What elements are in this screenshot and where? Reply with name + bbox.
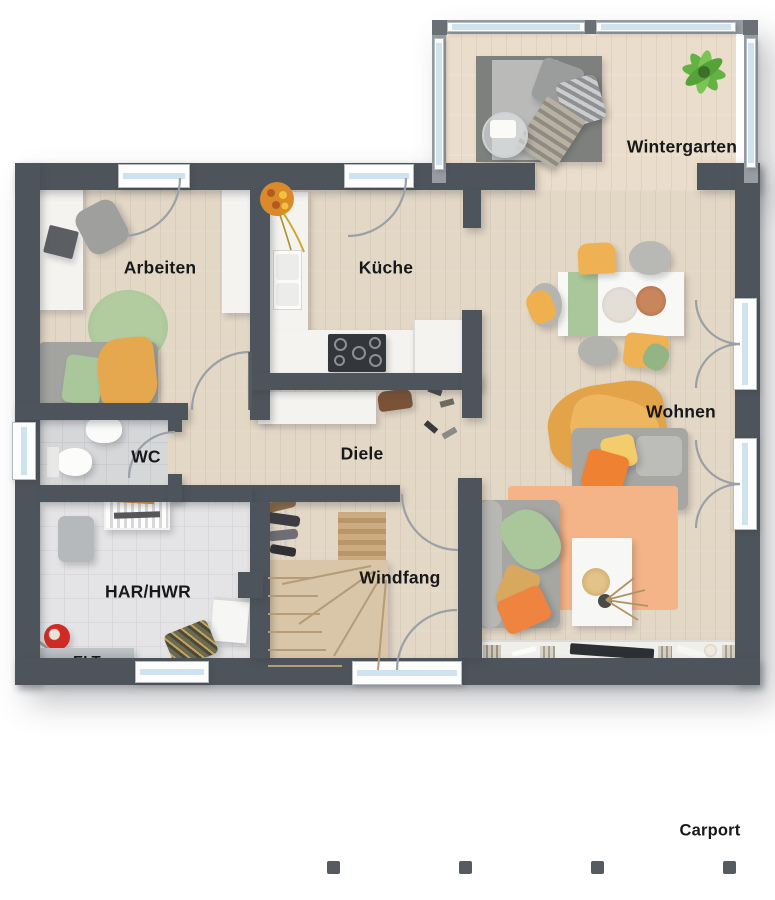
window-wc	[12, 422, 36, 480]
wall-wintergarten-column	[463, 190, 481, 228]
wall-wc-har	[40, 485, 252, 502]
wintergarten-corner-left	[432, 20, 447, 35]
wall-windfang-right	[458, 478, 482, 658]
wall-top-left	[15, 163, 535, 190]
glass-pane	[601, 24, 731, 30]
glass-pane	[452, 24, 580, 30]
sofa-chaise-cushion	[636, 436, 682, 476]
books-1	[483, 645, 501, 659]
glass-pane	[742, 303, 748, 385]
laundry-bin-gray	[58, 516, 94, 562]
vase-dark	[598, 594, 612, 608]
glass-pane	[123, 173, 185, 179]
wintergarten-glazing-left	[434, 38, 444, 170]
window-har	[135, 661, 209, 683]
floor-plan: ELT	[0, 0, 775, 900]
window-arbeiten	[118, 164, 190, 188]
woven-tray	[582, 568, 610, 596]
terrace-door-1	[733, 298, 757, 390]
room-label-windfang: Windfang	[359, 568, 440, 589]
wintergarten-mullion	[585, 20, 596, 34]
room-label-har-hwr: HAR/HWR	[105, 582, 191, 603]
burner-2	[334, 355, 345, 366]
wall-wc-right-top	[168, 420, 182, 432]
carport-post-4	[723, 861, 736, 874]
wardrobe	[222, 180, 252, 313]
room-label-wohnen: Wohnen	[646, 402, 716, 423]
kitchen-sink-basin-1	[276, 254, 299, 280]
glass-pane	[748, 43, 754, 163]
wintergarten-glazing-top-1	[447, 22, 585, 32]
burner-4	[369, 337, 381, 349]
glass-pane	[349, 173, 409, 179]
wintergarten-corner-right	[743, 20, 758, 35]
burner-3	[352, 346, 366, 360]
glass-pane	[140, 669, 204, 675]
candle	[704, 644, 717, 657]
glass-pane	[21, 427, 27, 475]
room-label-carport: Carport	[680, 822, 741, 841]
wall-right	[735, 163, 760, 685]
kitchen-tall-unit	[413, 320, 469, 374]
table-runner	[568, 272, 598, 336]
sideboard-diele	[258, 392, 376, 424]
wall-kitchen-bottom	[250, 373, 482, 390]
chimney-block	[238, 572, 263, 598]
burner-1	[334, 338, 347, 351]
dining-chair-gray-topright	[629, 241, 671, 275]
carport-post-3	[591, 861, 604, 874]
wall-diele-windfang	[252, 485, 400, 502]
window-kueche	[344, 164, 414, 188]
carport-post-1	[327, 861, 340, 874]
centerpiece-bowl	[636, 286, 666, 316]
glass-pane	[357, 670, 457, 676]
tray	[490, 120, 516, 138]
room-label-wintergarten: Wintergarten	[627, 137, 737, 158]
room-label-diele: Diele	[341, 444, 384, 465]
dining-chair-yellow-top	[577, 242, 617, 275]
toilet-bowl	[56, 448, 92, 476]
wall-arbeiten-bottom	[15, 403, 188, 420]
terrace-door-2	[733, 438, 757, 530]
wintergarten-glazing-right	[746, 38, 756, 168]
burner-5	[369, 354, 382, 367]
carport-post-2	[459, 861, 472, 874]
kitchen-sink-basin-2	[276, 283, 299, 306]
glass-pane	[436, 43, 442, 165]
room-label-wc: WC	[131, 447, 161, 468]
wall-diele-right	[462, 310, 482, 418]
wintergarten-glazing-top-2	[596, 22, 736, 32]
daybed-blanket-orange	[95, 335, 160, 411]
room-label-kueche: Küche	[359, 258, 413, 279]
toilet-tank	[47, 447, 59, 477]
wall-wc-right-bottom	[168, 474, 182, 502]
entry-door	[352, 661, 462, 685]
glass-pane	[742, 443, 748, 525]
wc-sink	[86, 416, 122, 443]
washing-machine	[210, 597, 250, 644]
centerpiece-flowers	[602, 287, 638, 323]
room-label-arbeiten: Arbeiten	[124, 258, 197, 279]
dining-chair-gray-bottom	[578, 336, 618, 366]
